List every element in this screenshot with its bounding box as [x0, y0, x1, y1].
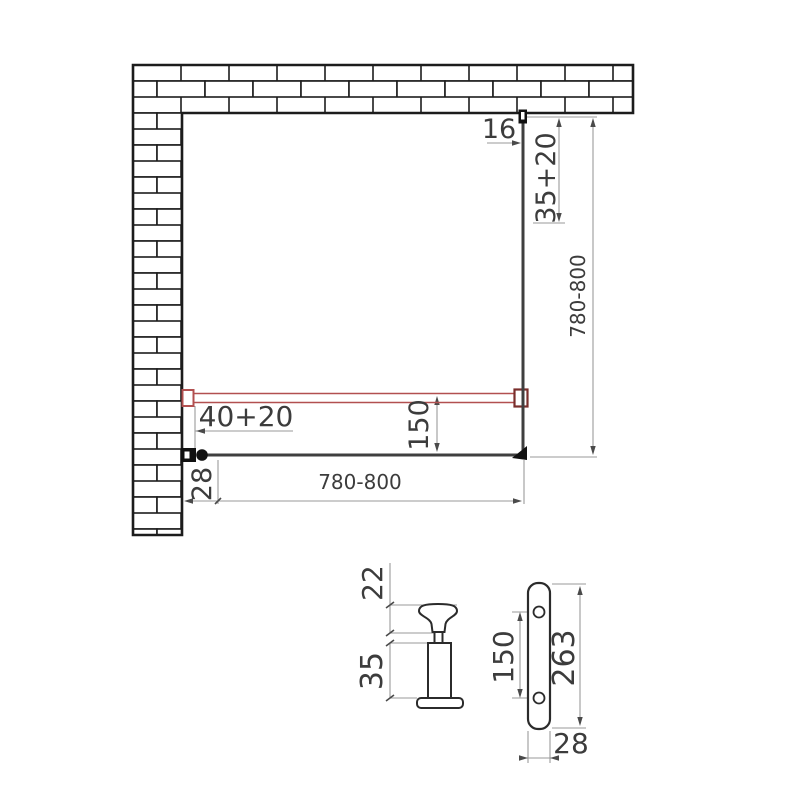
- dim-knob-body-height: 35: [355, 652, 390, 690]
- dim-profile-width: 28: [553, 727, 589, 760]
- knob-cap: [419, 604, 457, 632]
- dim-profile-hole-spacing: 150: [487, 630, 520, 683]
- top-wall-bracket: [519, 110, 528, 124]
- wall-profile-hole-bottom: [534, 693, 545, 704]
- dim-support-bar-offset: 150: [404, 399, 435, 451]
- knob-base: [417, 698, 463, 708]
- detail-wall-profile: 150 263 28: [487, 583, 589, 760]
- support-bar-wall-bracket: [183, 390, 194, 406]
- support-bar-glass-clamp: [515, 390, 528, 407]
- knob-body: [428, 643, 451, 698]
- dim-wall-profile-adjust: 35+20: [531, 132, 562, 223]
- left-wall-bracket: [181, 448, 208, 462]
- dim-profile-length: 263: [547, 629, 582, 686]
- dim-panel-bottom-width: 780-800: [318, 470, 402, 494]
- dimension-labels: 16 35+20 780-800 40+20 150 28 780-800: [187, 114, 590, 501]
- dim-support-bar-adjust: 40+20: [199, 400, 294, 433]
- technical-drawing-page: 16 35+20 780-800 40+20 150 28 780-800 22…: [0, 0, 800, 800]
- detail-knob: 22 35: [355, 565, 463, 708]
- corner-foot: [512, 446, 527, 460]
- dim-wall-profile-width: 28: [187, 467, 218, 501]
- knob-stem: [435, 632, 443, 643]
- wall-profile-hole-top: [534, 607, 545, 618]
- dim-top-bracket-width: 16: [482, 114, 516, 145]
- shower-enclosure-plan-drawing: 16 35+20 780-800 40+20 150 28 780-800 22…: [0, 0, 800, 800]
- dim-panel-right-width: 780-800: [566, 254, 590, 338]
- dim-knob-cap-height: 22: [356, 565, 389, 601]
